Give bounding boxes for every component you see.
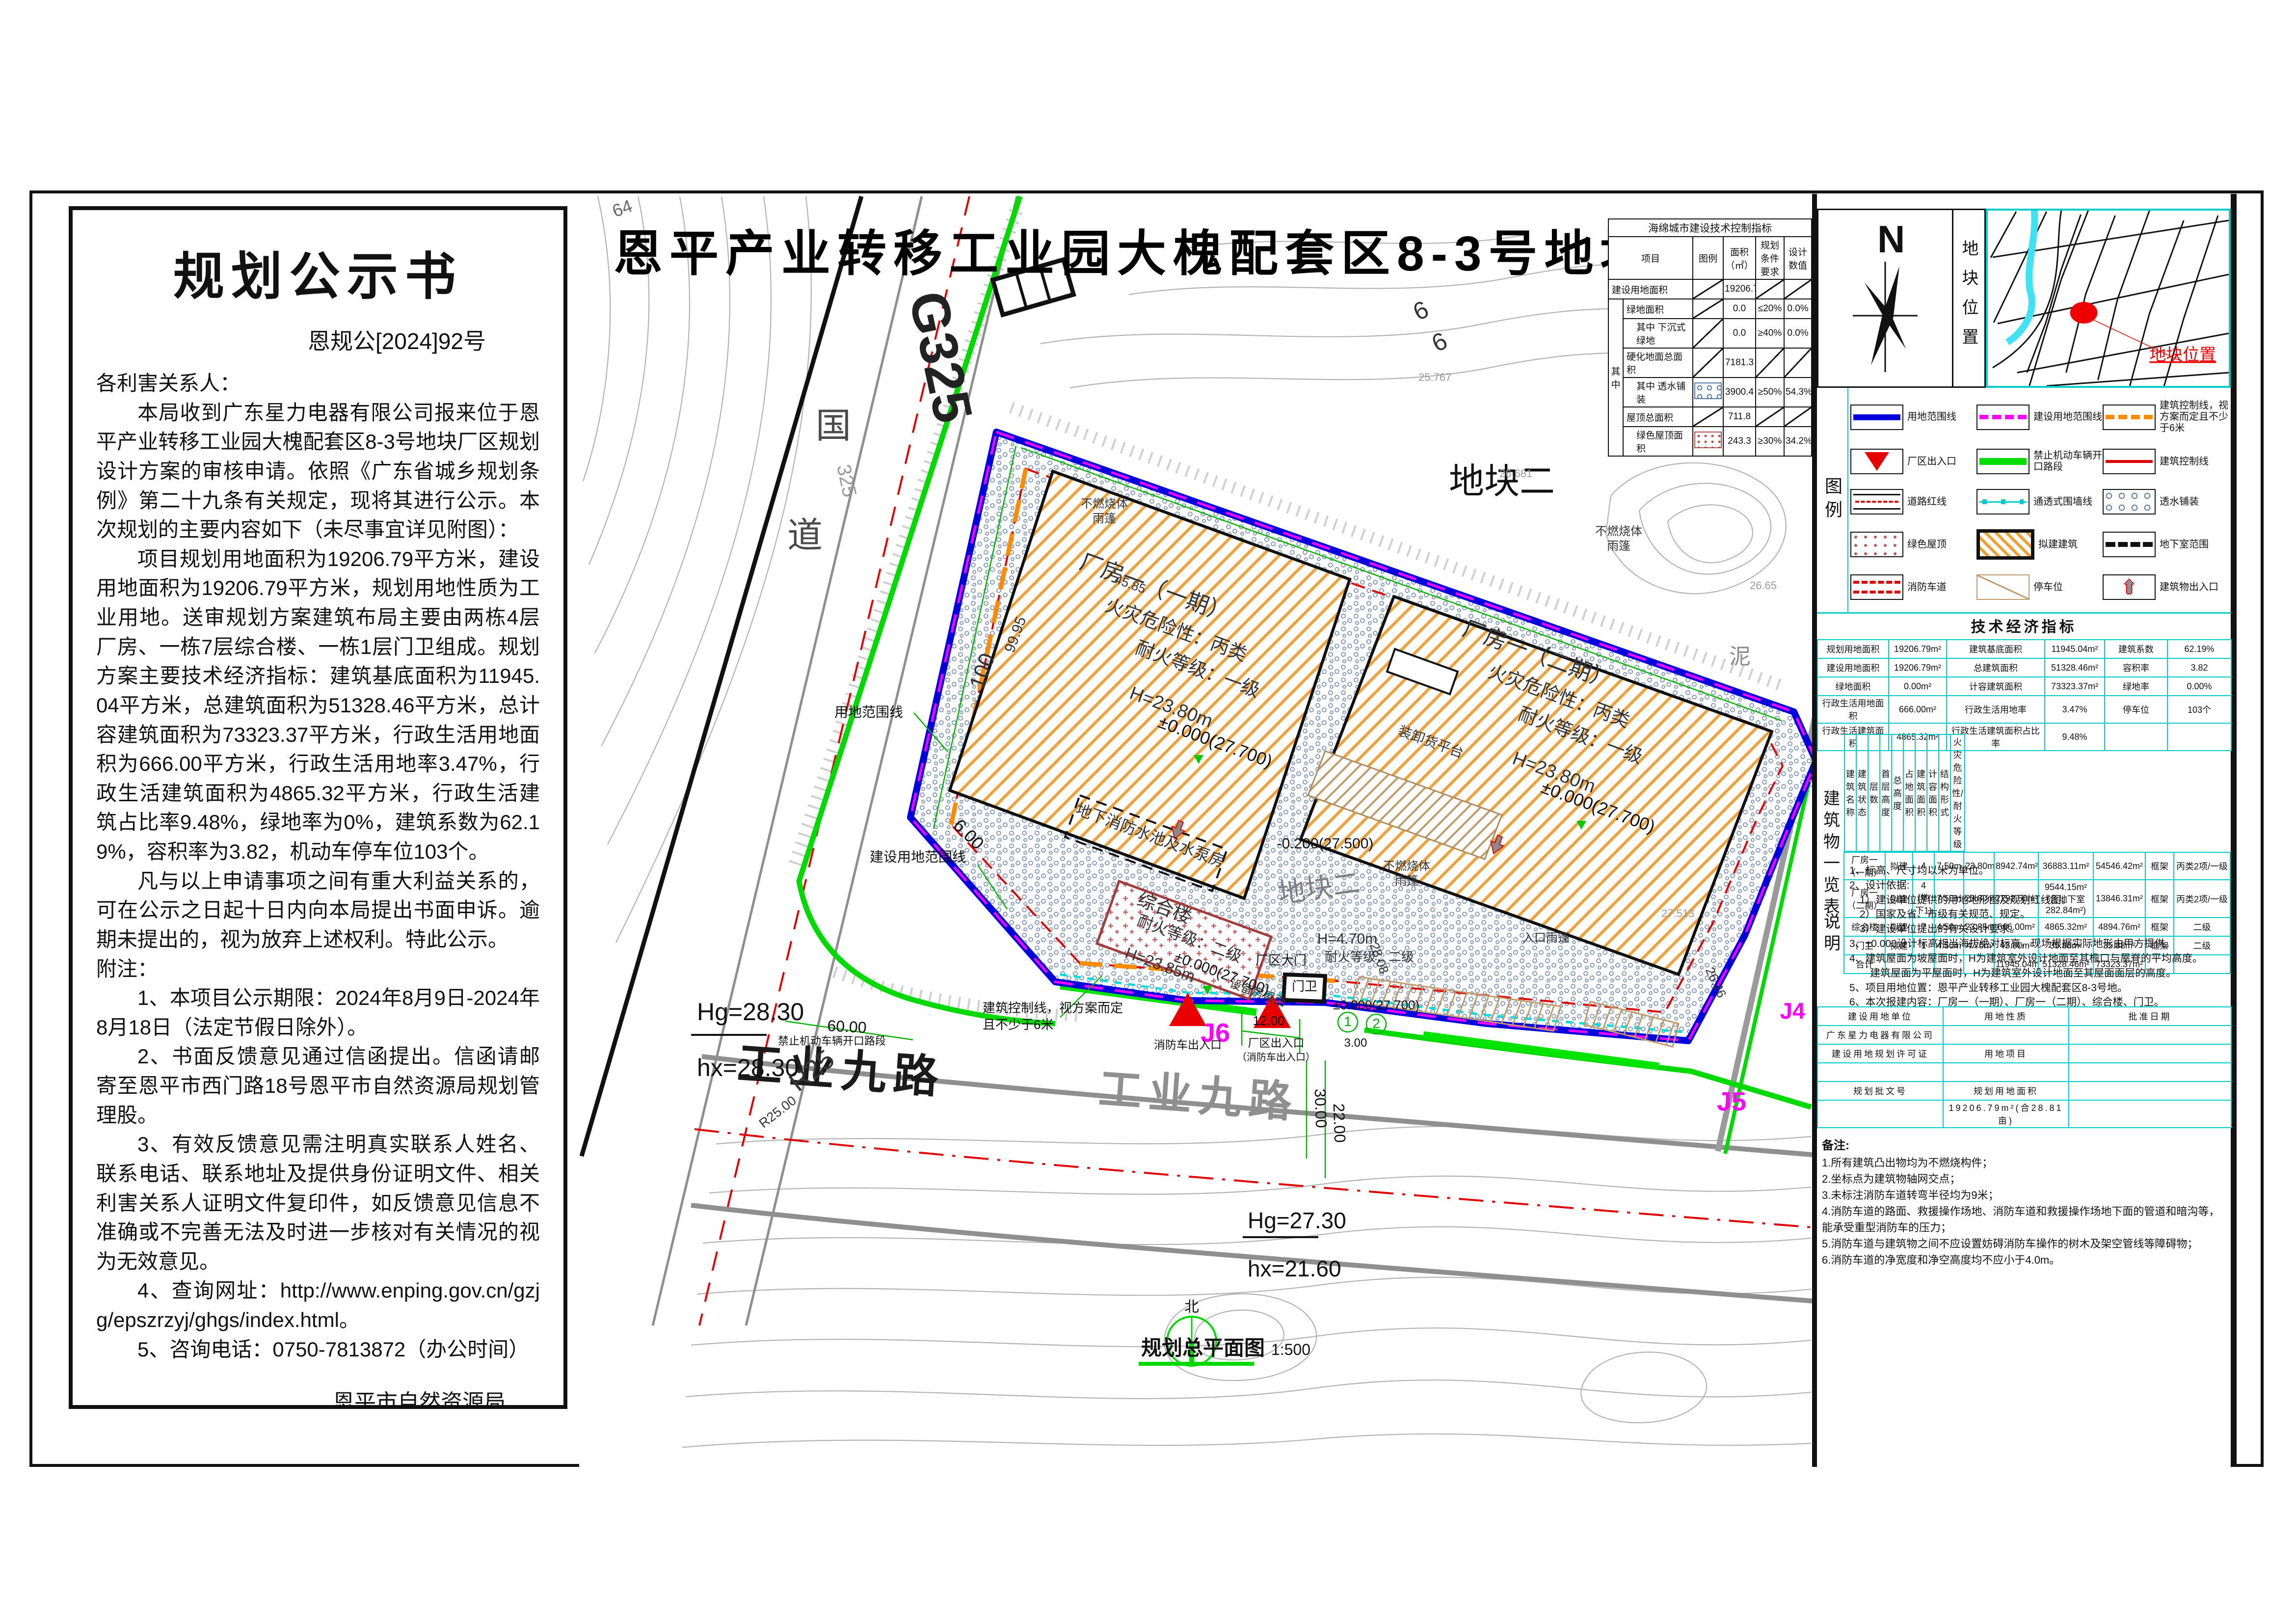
fire-lane-icon xyxy=(1850,574,1903,600)
sponge-row-area: 3900.4 xyxy=(1723,378,1756,407)
diag-cell xyxy=(1756,348,1784,378)
north-letter: N xyxy=(1877,217,1905,261)
indicator-cell: 73323.37m² xyxy=(2045,677,2105,696)
legend-title: 图例 xyxy=(1819,477,1845,524)
map-label: （消防车出入口） xyxy=(1237,1052,1315,1063)
indicator-cell: 3.82 xyxy=(2167,658,2231,677)
legend-label: 建设用地范围线 xyxy=(2033,411,2102,423)
indicator-cell: 19206.79m² xyxy=(1889,658,1947,677)
indicator-cell: 3.47% xyxy=(2045,696,2105,723)
map-label: 建设用地范围线 xyxy=(870,849,966,865)
sponge-row-val: 0.0% xyxy=(1784,319,1812,348)
orange-dash-icon xyxy=(2103,405,2156,430)
legend-label: 通透式围墙线 xyxy=(2033,496,2092,508)
legend-label: 道路红线 xyxy=(1907,496,1947,508)
red-tri-icon xyxy=(1850,449,1903,474)
map-label: 不燃烧体 xyxy=(1595,525,1642,538)
legend-item: 停车位 xyxy=(1976,574,2103,600)
map-label: hx=21.60 xyxy=(1248,1256,1341,1281)
location-strip-label: 地块位置 xyxy=(1957,240,1981,357)
sponge-row-item: 硬化地面总面积 xyxy=(1623,348,1693,378)
sponge-row-req: ≥50% xyxy=(1756,378,1784,407)
diag-cell xyxy=(1784,279,1812,299)
inset-river xyxy=(2007,211,2035,342)
legend-label: 建筑控制线，视方案而定且不少于6米 xyxy=(2160,400,2229,434)
sponge-row-area: 0.0 xyxy=(1723,319,1756,348)
text-line: 6.消防车道的净宽度和净空高度均不应小于4.0m。 xyxy=(1822,1252,2226,1268)
text-line: 3、有效反馈意见需注明真实联系人姓名、联系电话、联系地址及提供身份证明文件、相关… xyxy=(96,1130,540,1276)
legend-label: 绿色屋顶 xyxy=(1907,539,1947,550)
notice-notes: 1、本项目公示期限：2024年8月9日-2024年8月18日（法定节假日除外）。… xyxy=(96,983,540,1364)
legend-item: 透水铺装 xyxy=(2103,489,2229,514)
map-label: 雨篷 xyxy=(1395,874,1418,888)
admin-table: 建设用地单位用地性质批准日期广东星力电器有限公司建设用地规划许可证用地项目规划批… xyxy=(1817,1006,2232,1128)
indicator-cell: 建筑基底面积 xyxy=(1947,640,2045,658)
green-roof-icon xyxy=(1850,532,1903,557)
sponge-row-req: ≥40% xyxy=(1756,319,1784,348)
indicator-cell: 51328.46m² xyxy=(2045,658,2105,677)
legend-label: 透水铺装 xyxy=(2160,496,2199,508)
diag-cell xyxy=(1693,348,1723,378)
admin-cell xyxy=(1943,1063,2069,1082)
indicator-cell: 0.00m² xyxy=(1889,677,1947,696)
building-header-cell: 结构形式 xyxy=(1939,734,1950,851)
map-title: 恩平产业转移工业园大槐配套区8-3号地地块 xyxy=(614,214,1712,285)
map-label: 1 xyxy=(1344,1014,1352,1029)
map-label: 26.65 xyxy=(1750,579,1777,592)
map-label: 3.00 xyxy=(1344,1036,1367,1050)
diag-cell xyxy=(1784,348,1812,378)
text-line: 1、标高、尺寸均以米为单位。 xyxy=(1849,864,2226,878)
admin-cell: 广东星力电器有限公司 xyxy=(1817,1026,1943,1044)
legend-label: 厂区出入口 xyxy=(1907,456,1956,467)
wall-line-icon xyxy=(1976,489,2029,514)
legend-item: 禁止机动车辆开口路段 xyxy=(1976,449,2103,474)
notice-agency: 恩平市自然资源局 xyxy=(96,1386,506,1409)
indicator-cell: 0.00% xyxy=(2167,677,2231,696)
legend-label: 建筑控制线 xyxy=(2160,456,2209,467)
sponge-row-item: 建设用地面积 xyxy=(1608,279,1693,299)
building-header-cell: 火灾危险性/耐火等级 xyxy=(1950,734,1965,851)
admin-cell xyxy=(2069,1082,2231,1100)
map-label: 不燃烧体 xyxy=(1081,497,1128,511)
diag-cell xyxy=(1693,279,1723,299)
text-line: 4.消防车道的路面、救援操作场地、消防车道和救援操作场地下面的管道和暗沟等，能承… xyxy=(1822,1203,2226,1236)
map-label: 27.513 xyxy=(1661,907,1694,920)
indicator-cell: 计容建筑面积 xyxy=(1947,677,2045,696)
map-label: 入口雨篷 xyxy=(1522,931,1570,945)
legend-section: 图例 用地范围线建设用地范围线建筑控制线，视方案而定且不少于6米厂区出入口禁止机… xyxy=(1817,388,2231,614)
sponge-row-area: 243.3 xyxy=(1723,427,1756,456)
legend-item: 拟建建筑 xyxy=(1976,529,2103,560)
permeable-paving-icon xyxy=(1693,378,1723,407)
plan-sheet: 规划公示书 恩规公[2024]92号 各利害关系人： 本局收到广东星力电器有限公… xyxy=(0,0,2296,1624)
map-label: 1:500 xyxy=(1271,1341,1310,1358)
admin-table-section: 建设用地单位用地性质批准日期广东星力电器有限公司建设用地规划许可证用地项目规划批… xyxy=(1817,1006,2231,1128)
legend-label: 拟建建筑 xyxy=(2038,539,2078,550)
map-label: 22.00 xyxy=(1330,1103,1349,1143)
admin-cell: 建设用地单位 xyxy=(1817,1007,1943,1026)
notes-section: 说明 1、标高、尺寸均以米为单位。2、设计依据: 1）建设单位提供的用地地形图及… xyxy=(1817,862,2231,1006)
diag-cell xyxy=(1756,407,1784,427)
text-line: 建筑屋面为平屋面时，H为建筑室外设计地面至其屋面面层的高度。 xyxy=(1849,966,2226,981)
indicator-cell: 建筑系数 xyxy=(2105,640,2167,658)
sponge-header: 项目 xyxy=(1608,237,1693,279)
notes-strip: 说明 xyxy=(1817,862,1844,1006)
legend-item: 建设用地范围线 xyxy=(1976,400,2103,434)
admin-cell xyxy=(1817,1063,1943,1082)
admin-cell xyxy=(2069,1026,2231,1044)
map-label: H=4.70m xyxy=(1317,931,1378,947)
building-header-cell: 建筑状态 xyxy=(1856,734,1868,851)
notes-title: 说明 xyxy=(1819,913,1843,956)
map-label: 工业九路 xyxy=(1097,1064,1300,1127)
admin-cell: 建设用地规划许可证 xyxy=(1817,1044,1943,1063)
diag-cell xyxy=(1693,407,1723,427)
text-line: 4、建筑屋面为坡屋面时，H为建筑室外设计地面至其檐口与屋脊的平均高度。 xyxy=(1849,951,2226,966)
indicator-cell: 绿地面积 xyxy=(1817,677,1889,696)
sponge-header: 规划条件要求 xyxy=(1756,237,1784,279)
notice-paragraph: 项目规划用地面积为19206.79平方米，建设用地面积为19206.79平方米，… xyxy=(96,544,540,866)
legend-item: 消防车道 xyxy=(1850,574,1976,600)
legend-strip: 图例 xyxy=(1817,388,1848,612)
map-label: -0.200(27.500) xyxy=(1277,836,1374,852)
building-header-cell: 占地面积 xyxy=(1903,734,1915,851)
admin-cell: 批准日期 xyxy=(2069,1007,2231,1026)
map-label: 用地范围线 xyxy=(834,704,903,720)
text-line: 3.未标注消防车道转弯半径均为9米； xyxy=(1822,1187,2226,1203)
map-label: 消防车出入口 xyxy=(1154,1038,1222,1051)
indicator-cell: 建设用地面积 xyxy=(1817,658,1889,677)
indicator-cell: 总建筑面积 xyxy=(1947,658,2045,677)
notice-paragraph: 凡与以上申请事项之间有重大利益关系的，可在公示之日起十日内向本局提出书面申诉。逾… xyxy=(96,866,540,954)
notice-notes-label: 附注： xyxy=(96,954,540,984)
text-line: 2、设计依据: xyxy=(1849,878,2226,893)
building-header-cell: 总高度 xyxy=(1892,734,1903,851)
map-label: 12.00 xyxy=(1253,1013,1284,1028)
text-line: 1.所有建筑凸出物均为不燃烧构件； xyxy=(1822,1155,2226,1171)
map-label: 建筑控制线，视方案而定 xyxy=(983,1001,1123,1015)
legend-label: 消防车道 xyxy=(1907,582,1947,593)
green-roof-icon xyxy=(1693,427,1723,456)
remarks-title: 备注: xyxy=(1822,1137,2226,1155)
sponge-row-req: ≤20% xyxy=(1756,299,1784,319)
sponge-row-area: 7181.3 xyxy=(1723,348,1756,378)
map-label: 不燃烧体 xyxy=(1383,860,1430,873)
map-label: J4 xyxy=(1780,998,1805,1024)
sponge-row-area: 19206.79 xyxy=(1723,279,1756,299)
building-header-cell: 首层高度 xyxy=(1880,734,1892,851)
map-label: 泥 xyxy=(1729,645,1751,669)
location-callout-label: 地块位置 xyxy=(2149,346,2216,364)
admin-cell: 用地性质 xyxy=(1943,1007,2069,1026)
location-strip: 地块位置 xyxy=(1953,209,1986,388)
admin-cell xyxy=(2069,1063,2231,1082)
basement-icon xyxy=(2103,532,2156,557)
legend-item: 用地范围线 xyxy=(1850,400,1976,434)
road-redline-icon xyxy=(1850,489,1903,514)
green-bar-icon xyxy=(1976,449,2029,474)
text-line: 1）建设单位提供的用地地形图及规划红线图。 xyxy=(1849,893,2226,908)
diag-cell xyxy=(1784,407,1812,427)
remarks-section: 备注: 1.所有建筑凸出物均为不燃烧构件；2.坐标点为建筑物轴网交点；3.未标注… xyxy=(1817,1134,2231,1271)
map-label: 2 xyxy=(1372,1016,1380,1031)
notice-paragraph: 本局收到广东星力电器有限公司报来位于恩平产业转移工业园大槐配套区8-3号地块厂区… xyxy=(96,398,540,544)
notice-title: 规划公示书 xyxy=(96,235,540,309)
permeable-icon xyxy=(2103,489,2156,514)
text-line: 5、咨询电话：0750-7813872（办公时间） xyxy=(96,1335,540,1364)
legend-label: 禁止机动车辆开口路段 xyxy=(2033,450,2103,473)
text-line: 3、±0.000设计标高相当海拔绝对标高，现场根据实际地形由甲方提供。 xyxy=(1849,937,2226,951)
text-line: 5、项目用地位置：恩平产业转移工业园大槐配套区8-3号地。 xyxy=(1849,981,2226,996)
map-label: 60.00 xyxy=(827,1017,867,1036)
legend-item: 通透式围墙线 xyxy=(1976,489,2103,514)
building-header-cell: 计容面积 xyxy=(1927,734,1939,851)
sponge-row-val: 54.3% xyxy=(1784,378,1812,407)
legend-item: 建筑控制线 xyxy=(2103,449,2229,474)
map-label: R25.00 xyxy=(756,1093,799,1131)
admin-cell xyxy=(2069,1044,2231,1063)
location-inset-svg: 地块位置 xyxy=(1988,211,2229,386)
legend-item: 绿色屋顶 xyxy=(1850,529,1976,560)
sponge-header: 图例 xyxy=(1693,237,1723,279)
sponge-row-item: 绿色屋顶面积 xyxy=(1623,427,1693,456)
map-label: J5 xyxy=(1717,1087,1746,1116)
right-panel: N 地块位置 xyxy=(1812,194,2237,1467)
sponge-header: 设计数值 xyxy=(1784,237,1812,279)
admin-cell: 用地项目 xyxy=(1943,1044,2069,1063)
legend-label: 建筑物出入口 xyxy=(2160,582,2218,593)
map-label: 30.00 xyxy=(1311,1088,1331,1128)
north-arrow-box: N xyxy=(1817,209,1953,388)
location-inset-map: 地块位置 xyxy=(1986,209,2231,388)
diag-cell xyxy=(1756,279,1784,299)
indicator-cell: 停车位 xyxy=(2105,696,2167,723)
proposed-icon xyxy=(1976,529,2034,560)
sponge-title: 海绵城市建设技术控制指标 xyxy=(1608,219,1812,237)
map-label: 禁止机动车辆开口路段 xyxy=(778,1035,886,1047)
map-label: hx=28.30 xyxy=(697,1054,799,1082)
indicator-cell: 103个 xyxy=(2167,696,2231,723)
sponge-city-table: 海绵城市建设技术控制指标 项目 图例 面积（㎡） 规划条件要求 设计数值 建设用… xyxy=(1608,218,1812,457)
map-label: 道 xyxy=(787,516,823,555)
text-line: 4、查询网址：http://www.enping.gov.cn/gzjg/eps… xyxy=(96,1276,540,1334)
indicator-cell: 62.19% xyxy=(2167,640,2231,658)
sponge-row-req: ≥30% xyxy=(1756,427,1784,456)
sponge-header: 面积（㎡） xyxy=(1723,237,1756,279)
indicator-cell: 行政生活用地率 xyxy=(1947,696,2045,723)
legend-label: 停车位 xyxy=(2033,582,2063,593)
indicator-cell: 11945.04m² xyxy=(2045,640,2105,658)
indicator-cell: 绿地率 xyxy=(2105,677,2167,696)
text-line: 1、本项目公示期限：2024年8月9日-2024年8月18日（法定节假日除外）。 xyxy=(96,983,540,1042)
text-line: 2）国家及省、市级有关规范、规定。 xyxy=(1849,907,2226,922)
legend-grid: 用地范围线建设用地范围线建筑控制线，视方案而定且不少于6米厂区出入口禁止机动车辆… xyxy=(1848,388,2231,612)
notes-list: 1、标高、尺寸均以米为单位。2、设计依据: 1）建设单位提供的用地地形图及规划红… xyxy=(1844,862,2231,1006)
legend-item: 道路红线 xyxy=(1850,489,1976,514)
sponge-row-item: 其中 透水铺装 xyxy=(1623,378,1693,407)
map-label: 6 xyxy=(1427,326,1451,357)
notice-panel: 规划公示书 恩规公[2024]92号 各利害关系人： 本局收到广东星力电器有限公… xyxy=(69,206,567,1409)
notice-signature: 恩平市自然资源局 2024年8月9日 xyxy=(96,1386,540,1409)
map-label: 雨篷 xyxy=(1093,512,1116,525)
building-header-cell: 层数 xyxy=(1868,734,1880,851)
text-line: 2、书面反馈意见通过信函提出。信函请邮寄至恩平市西门路18号恩平市自然资源局规划… xyxy=(96,1042,540,1130)
indicator-cell: 行政生活用地面积 xyxy=(1817,696,1889,723)
sponge-group-label: 其中 xyxy=(1608,299,1623,456)
map-label: Hg=27.30 xyxy=(1248,1208,1346,1233)
indicator-cell: 19206.79m² xyxy=(1889,640,1947,658)
sponge-row-item: 屋顶总面积 xyxy=(1623,407,1693,427)
sponge-row-area: 711.8 xyxy=(1723,407,1756,427)
text-line: 2.坐标点为建筑物轴网交点； xyxy=(1822,1171,2226,1187)
parking-icon xyxy=(1976,574,2029,600)
north-arrow-icon: N xyxy=(1818,210,1952,386)
bldg-entrance-icon xyxy=(2103,574,2156,600)
admin-cell: 规划批文号 xyxy=(1817,1082,1943,1100)
notice-salutation: 各利害关系人： xyxy=(96,369,540,398)
map-label: 北 xyxy=(1184,1299,1199,1315)
map-label: 雨篷 xyxy=(1607,540,1630,553)
map-label: 25.767 xyxy=(1418,371,1451,383)
admin-cell: 规划用地面积 xyxy=(1943,1082,2069,1100)
building-header-cell: 建筑面积 xyxy=(1915,734,1927,851)
map-label: 且不少于6米 xyxy=(983,1017,1053,1032)
scale-underline xyxy=(1139,1362,1254,1366)
map-label: ±0.000(27.700) xyxy=(1333,998,1419,1012)
map-label: 6 xyxy=(1409,295,1433,326)
admin-cell xyxy=(1817,1100,1943,1128)
map-label: 规划总平面图 xyxy=(1141,1336,1265,1359)
text-line: 3）建设单位提出的有关设计要求。 xyxy=(1849,922,2226,937)
map-label: 国 xyxy=(816,406,851,446)
sponge-row-area: 0.0 xyxy=(1723,299,1756,319)
map-label: 26.681 xyxy=(1499,467,1532,480)
map-label: 厂区出入口 xyxy=(1248,1036,1305,1049)
map-label: 门卫 xyxy=(1292,979,1317,994)
admin-cell xyxy=(2069,1100,2231,1128)
text-line: 5.消防车道与建筑物之间不应设置妨碍消防车操作的树木及架空管线等障碍物； xyxy=(1822,1236,2226,1252)
map-label: G325 xyxy=(898,286,984,428)
legend-item: 厂区出入口 xyxy=(1850,449,1976,474)
indicator-cell: 666.00m² xyxy=(1889,696,1947,723)
blue-line-icon xyxy=(1850,405,1903,430)
red-line-icon xyxy=(2103,449,2156,474)
diag-cell xyxy=(1693,299,1723,319)
map-label: 厂区大门 xyxy=(1255,953,1307,968)
magenta-dash-icon xyxy=(1976,405,2029,430)
legend-item: 建筑控制线，视方案而定且不少于6米 xyxy=(2103,400,2229,434)
legend-item: 地下室范围 xyxy=(2103,529,2229,560)
orientation-row: N 地块位置 xyxy=(1817,209,2231,388)
building-header-cell: 建筑名称 xyxy=(1844,734,1856,851)
indicators-title: 技术经济指标 xyxy=(1817,614,2231,639)
legend-label: 地下室范围 xyxy=(2160,539,2209,550)
map-label: Hg=28.30 xyxy=(697,998,804,1026)
admin-cell: 19206.79m²(合28.81亩) xyxy=(1943,1100,2069,1128)
indicator-cell: 容积率 xyxy=(2105,658,2167,677)
legend-item: 建筑物出入口 xyxy=(2103,574,2229,600)
site-plan-map: 地块二地块二泥工业九路工业九路国道G3253256410099.95R25R25… xyxy=(579,194,1812,1467)
sponge-row-item: 绿地面积 xyxy=(1623,299,1693,319)
remarks-list: 1.所有建筑凸出物均为不燃烧构件；2.坐标点为建筑物轴网交点；3.未标注消防车道… xyxy=(1822,1155,2226,1268)
sponge-row-val: 34.2% xyxy=(1784,427,1812,456)
indicators-section: 技术经济指标 规划用地面积19206.79m²建筑基底面积11945.04m²建… xyxy=(1817,614,2231,751)
notice-doc-number: 恩规公[2024]92号 xyxy=(96,324,540,356)
legend-label: 用地范围线 xyxy=(1907,411,1956,423)
sponge-row-val: 0.0% xyxy=(1784,299,1812,319)
sponge-row-item: 其中 下沉式绿地 xyxy=(1623,319,1693,348)
indicator-cell: 规划用地面积 xyxy=(1817,640,1889,658)
diag-cell xyxy=(1693,319,1723,348)
admin-cell xyxy=(1943,1026,2069,1044)
